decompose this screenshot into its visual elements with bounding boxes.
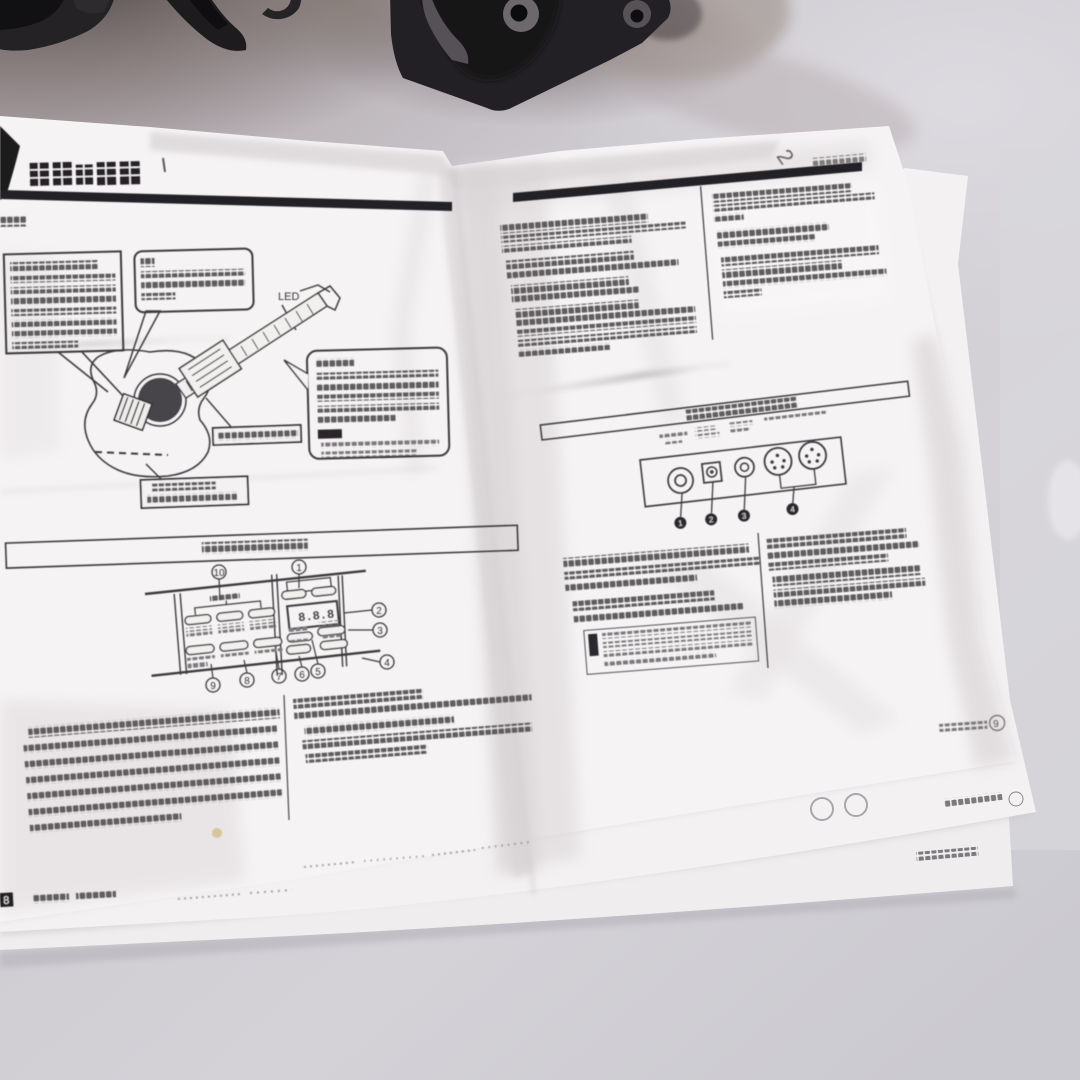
svg-text:6: 6 (299, 670, 305, 681)
svg-text:3: 3 (377, 626, 383, 637)
svg-text:9: 9 (210, 681, 216, 692)
svg-text:LED: LED (278, 291, 299, 303)
svg-text:1: 1 (296, 563, 302, 574)
svg-text:7: 7 (276, 672, 282, 683)
svg-text:2: 2 (376, 606, 382, 617)
svg-text:10: 10 (213, 568, 225, 579)
svg-text:5: 5 (315, 667, 321, 678)
svg-text:8: 8 (3, 895, 10, 907)
svg-text:8: 8 (244, 676, 250, 687)
svg-text:4: 4 (384, 658, 390, 669)
